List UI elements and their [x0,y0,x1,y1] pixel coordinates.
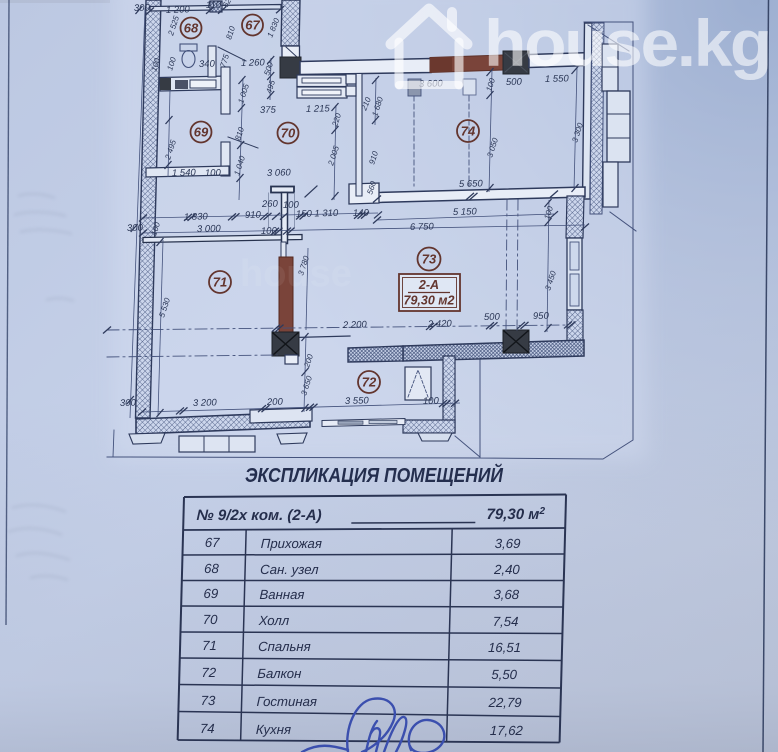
svg-text:1 260: 1 260 [241,57,266,69]
svg-text:Сан. узел: Сан. узел [260,562,319,577]
svg-text:house: house [240,253,352,295]
svg-text:100: 100 [423,396,440,407]
svg-text:1 215: 1 215 [306,103,331,115]
svg-text:300: 300 [120,398,137,409]
svg-text:70: 70 [203,612,219,627]
svg-text:Спальня: Спальня [258,639,311,654]
svg-text:69: 69 [203,586,219,601]
svg-text:110: 110 [206,0,222,11]
svg-text:5 650: 5 650 [459,178,484,190]
svg-text:950: 950 [533,311,550,322]
svg-text:340: 340 [199,59,216,70]
svg-text:70: 70 [281,126,296,141]
svg-text:69: 69 [194,125,209,140]
svg-text:1 540: 1 540 [172,167,197,179]
svg-text:22,79: 22,79 [487,695,522,710]
svg-text:3 200: 3 200 [193,397,218,409]
svg-text:7,54: 7,54 [493,614,519,629]
svg-text:300: 300 [134,3,151,14]
svg-text:79,30 м2: 79,30 м2 [404,294,455,308]
svg-text:3,68: 3,68 [493,587,520,602]
svg-text:3 550: 3 550 [345,395,370,407]
svg-text:3,69: 3,69 [495,536,522,551]
svg-text:72: 72 [201,665,217,680]
svg-text:Ванная: Ванная [259,587,304,602]
svg-text:300: 300 [127,223,144,234]
svg-text:67: 67 [245,18,260,33]
svg-text:74: 74 [200,721,215,736]
svg-text:375: 375 [260,105,277,116]
svg-text:3 060: 3 060 [267,167,292,179]
svg-text:260: 260 [261,199,279,210]
svg-text:150 1 310: 150 1 310 [296,208,339,220]
svg-text:2 420: 2 420 [427,318,453,330]
svg-text:71: 71 [202,638,217,653]
svg-text:79,30 м2: 79,30 м2 [486,506,545,523]
svg-text:68: 68 [184,21,199,36]
svg-text:910: 910 [245,210,262,221]
svg-text:67: 67 [205,535,221,550]
svg-text:№ 9/2х ком. (2-А): № 9/2х ком. (2-А) [196,507,322,524]
svg-text:2-А: 2-А [418,278,439,292]
svg-text:140: 140 [353,208,370,219]
svg-text:200: 200 [266,397,284,408]
svg-text:17,62: 17,62 [490,723,524,738]
svg-text:Прихожая: Прихожая [261,536,323,551]
svg-text:73: 73 [422,252,437,267]
svg-text:Балкон: Балкон [257,666,301,681]
svg-text:72: 72 [362,375,377,390]
svg-text:100: 100 [205,168,222,179]
svg-text:100: 100 [261,226,278,237]
svg-text:2 200: 2 200 [342,319,368,331]
svg-text:Гостиная: Гостиная [256,694,317,709]
svg-text:5 150: 5 150 [453,206,478,218]
svg-text:6 750: 6 750 [410,221,435,233]
svg-text:1 830: 1 830 [184,211,209,223]
svg-text:500: 500 [484,312,501,323]
svg-text:house.kg: house.kg [484,8,770,81]
svg-text:71: 71 [213,275,227,290]
svg-text:5,50: 5,50 [491,667,518,682]
svg-text:ЭКСПЛИКАЦИЯ ПОМЕЩЕНИЙ: ЭКСПЛИКАЦИЯ ПОМЕЩЕНИЙ [245,463,504,487]
svg-text:1 200: 1 200 [166,4,191,16]
svg-text:73: 73 [200,693,216,708]
svg-text:2,40: 2,40 [493,562,521,577]
svg-text:3 000: 3 000 [197,223,222,235]
svg-text:Кухня: Кухня [256,722,292,737]
svg-text:16,51: 16,51 [488,640,521,655]
svg-text:74: 74 [461,124,476,139]
svg-text:68: 68 [204,561,220,576]
svg-text:Холл: Холл [258,613,290,628]
